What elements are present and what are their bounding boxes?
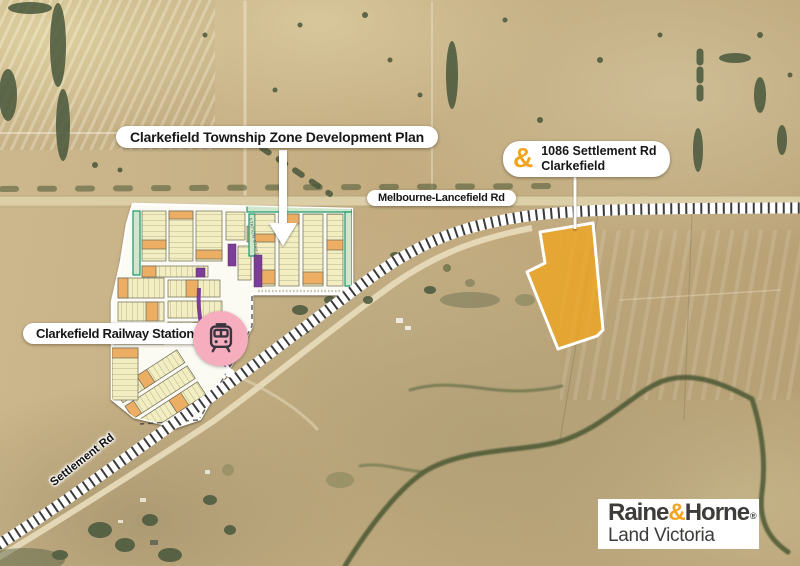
map-overlay: STATION STREET bbox=[0, 0, 800, 566]
station-label: Clarkefield Railway Station bbox=[23, 323, 207, 344]
property-leader-line bbox=[574, 172, 577, 229]
train-icon bbox=[204, 322, 238, 356]
logo-brand-line: Raine&Horne® bbox=[608, 501, 749, 525]
highlighted-parcel bbox=[527, 223, 603, 349]
raine-horne-logo: Raine&Horne® Land Victoria bbox=[598, 499, 759, 549]
logo-ampersand: & bbox=[668, 501, 684, 525]
station-marker bbox=[193, 311, 248, 366]
property-address-label: & 1086 Settlement Rd Clarkefield bbox=[503, 141, 670, 177]
raine-horne-ampersand-mark: & bbox=[513, 144, 533, 172]
property-address-line2: Clarkefield bbox=[541, 159, 605, 173]
main-road-text: Melbourne-Lancefield Rd bbox=[378, 192, 505, 204]
registered-mark: ® bbox=[750, 512, 757, 521]
logo-brand-raine: Raine bbox=[608, 501, 668, 525]
plan-title-label: Clarkefield Township Zone Development Pl… bbox=[116, 126, 438, 148]
property-address-line1: 1086 Settlement Rd bbox=[541, 144, 656, 158]
plan-title-text: Clarkefield Township Zone Development Pl… bbox=[130, 129, 424, 145]
station-label-text: Clarkefield Railway Station bbox=[36, 326, 194, 341]
map-canvas: STATION STREET Clarkefield Township Zone… bbox=[0, 0, 800, 566]
property-address-text: 1086 Settlement Rd Clarkefield bbox=[541, 144, 656, 174]
logo-subtitle: Land Victoria bbox=[608, 526, 749, 546]
logo-brand-horne: Horne bbox=[685, 501, 749, 525]
main-road-label: Melbourne-Lancefield Rd bbox=[367, 190, 516, 206]
